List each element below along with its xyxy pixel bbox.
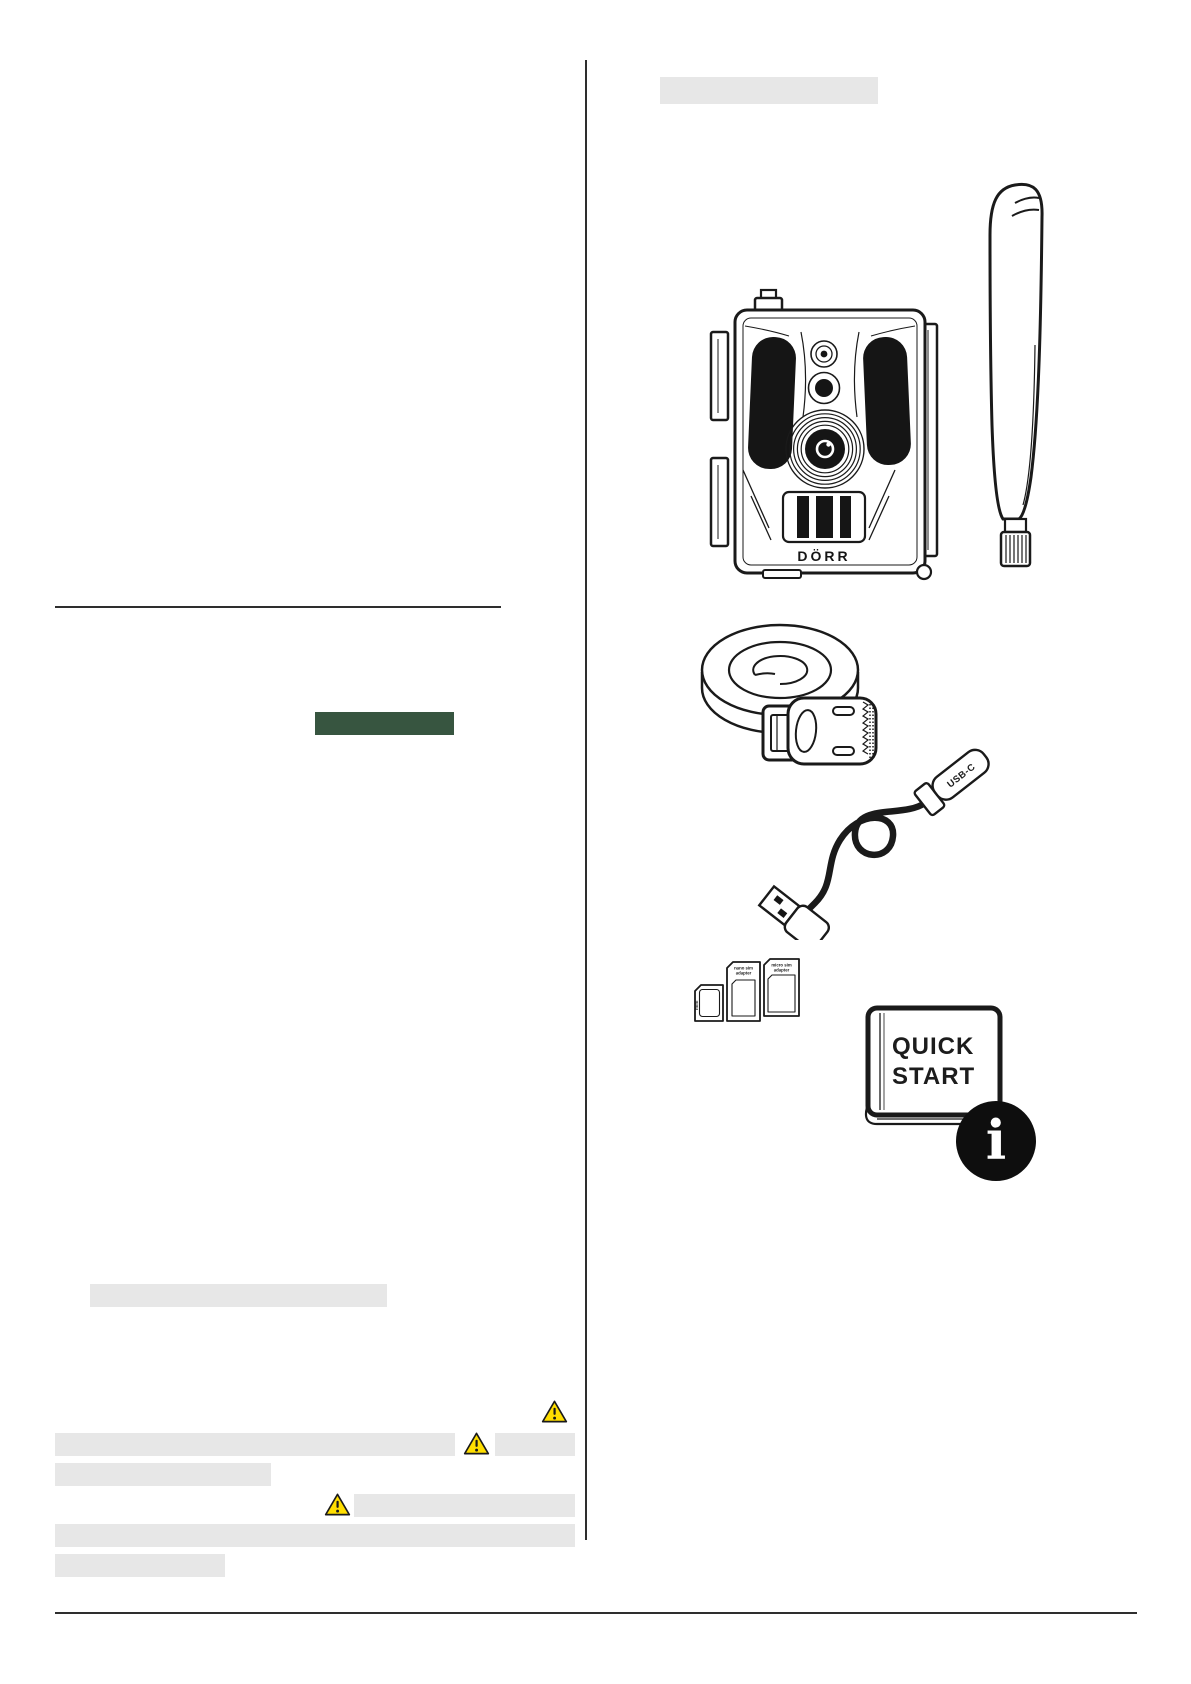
green-highlight-block: [315, 712, 454, 735]
sim-micro-label-line2: adapter: [774, 968, 790, 973]
warning-triangle-icon: [541, 1399, 568, 1424]
redacted-text-bar: [55, 1463, 271, 1486]
sim-nano-label-line2: adapter: [736, 971, 752, 976]
sim-adapter-illustration: mini nano sim adapter micro sim adapter: [688, 948, 808, 1028]
redacted-text-bar: [55, 1554, 225, 1577]
column-divider: [585, 60, 587, 1540]
footer-rule: [55, 1612, 1137, 1614]
manual-page: DÖRR: [0, 0, 1191, 1684]
redacted-text-bar: [55, 1433, 455, 1456]
quick-start-guide-illustration: QUICK START i: [855, 995, 1045, 1185]
redacted-heading-bar: [660, 77, 878, 104]
redacted-heading-bar: [90, 1284, 387, 1307]
sim-mini-label: mini: [694, 1001, 699, 1010]
section-rule: [55, 606, 501, 608]
antenna-illustration: [975, 175, 1065, 575]
quick-start-title-line2: START: [892, 1063, 975, 1090]
usb-cable-illustration: USB-C: [735, 700, 995, 940]
quick-start-title-line1: QUICK: [892, 1033, 974, 1060]
redacted-text-bar: [354, 1494, 575, 1517]
redacted-text-bar: [495, 1433, 575, 1456]
warning-triangle-icon: [324, 1492, 351, 1517]
redacted-text-bar: [55, 1524, 575, 1547]
info-icon-glyph: i: [986, 1108, 1007, 1172]
warning-triangle-icon: [463, 1431, 490, 1456]
trail-camera-illustration: DÖRR: [697, 282, 947, 582]
camera-brand-label: DÖRR: [797, 548, 850, 564]
